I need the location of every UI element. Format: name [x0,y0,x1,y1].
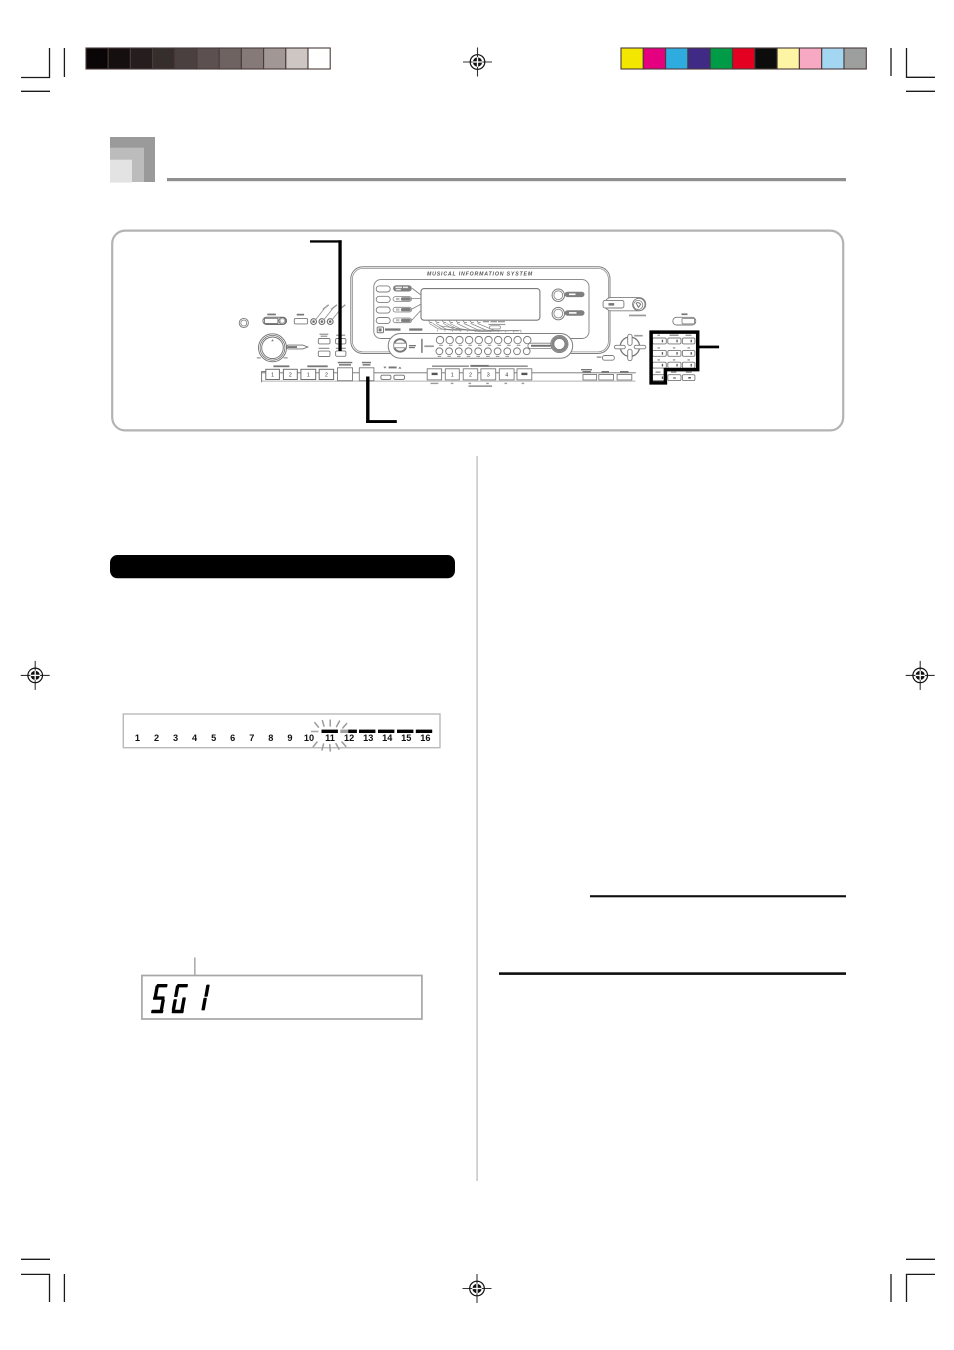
svg-text:2: 2 [289,373,292,379]
svg-text:1: 1 [135,733,140,743]
svg-text:2: 2 [154,733,159,743]
svg-text:13: 13 [363,733,373,743]
svg-text:6: 6 [230,733,235,743]
svg-text:5: 5 [211,733,216,743]
svg-text:4: 4 [505,373,508,379]
svg-text:9: 9 [287,733,292,743]
svg-text:12: 12 [344,733,354,743]
svg-text:4: 4 [192,733,198,743]
svg-text:7: 7 [249,733,254,743]
svg-text:2: 2 [469,373,472,379]
svg-text:1: 1 [271,373,274,379]
svg-text:8: 8 [268,733,273,743]
svg-text:1: 1 [451,373,454,379]
svg-text:MUSICAL INFORMATION SYSTEM: MUSICAL INFORMATION SYSTEM [427,271,533,277]
svg-text:11: 11 [325,733,335,743]
svg-text:14: 14 [382,733,393,743]
svg-text:3: 3 [487,373,490,379]
svg-text:16: 16 [420,733,430,743]
svg-text:2: 2 [325,373,328,379]
svg-text:10: 10 [304,733,314,743]
svg-text:15: 15 [401,733,411,743]
svg-text:3: 3 [173,733,178,743]
svg-text:1: 1 [307,373,310,379]
